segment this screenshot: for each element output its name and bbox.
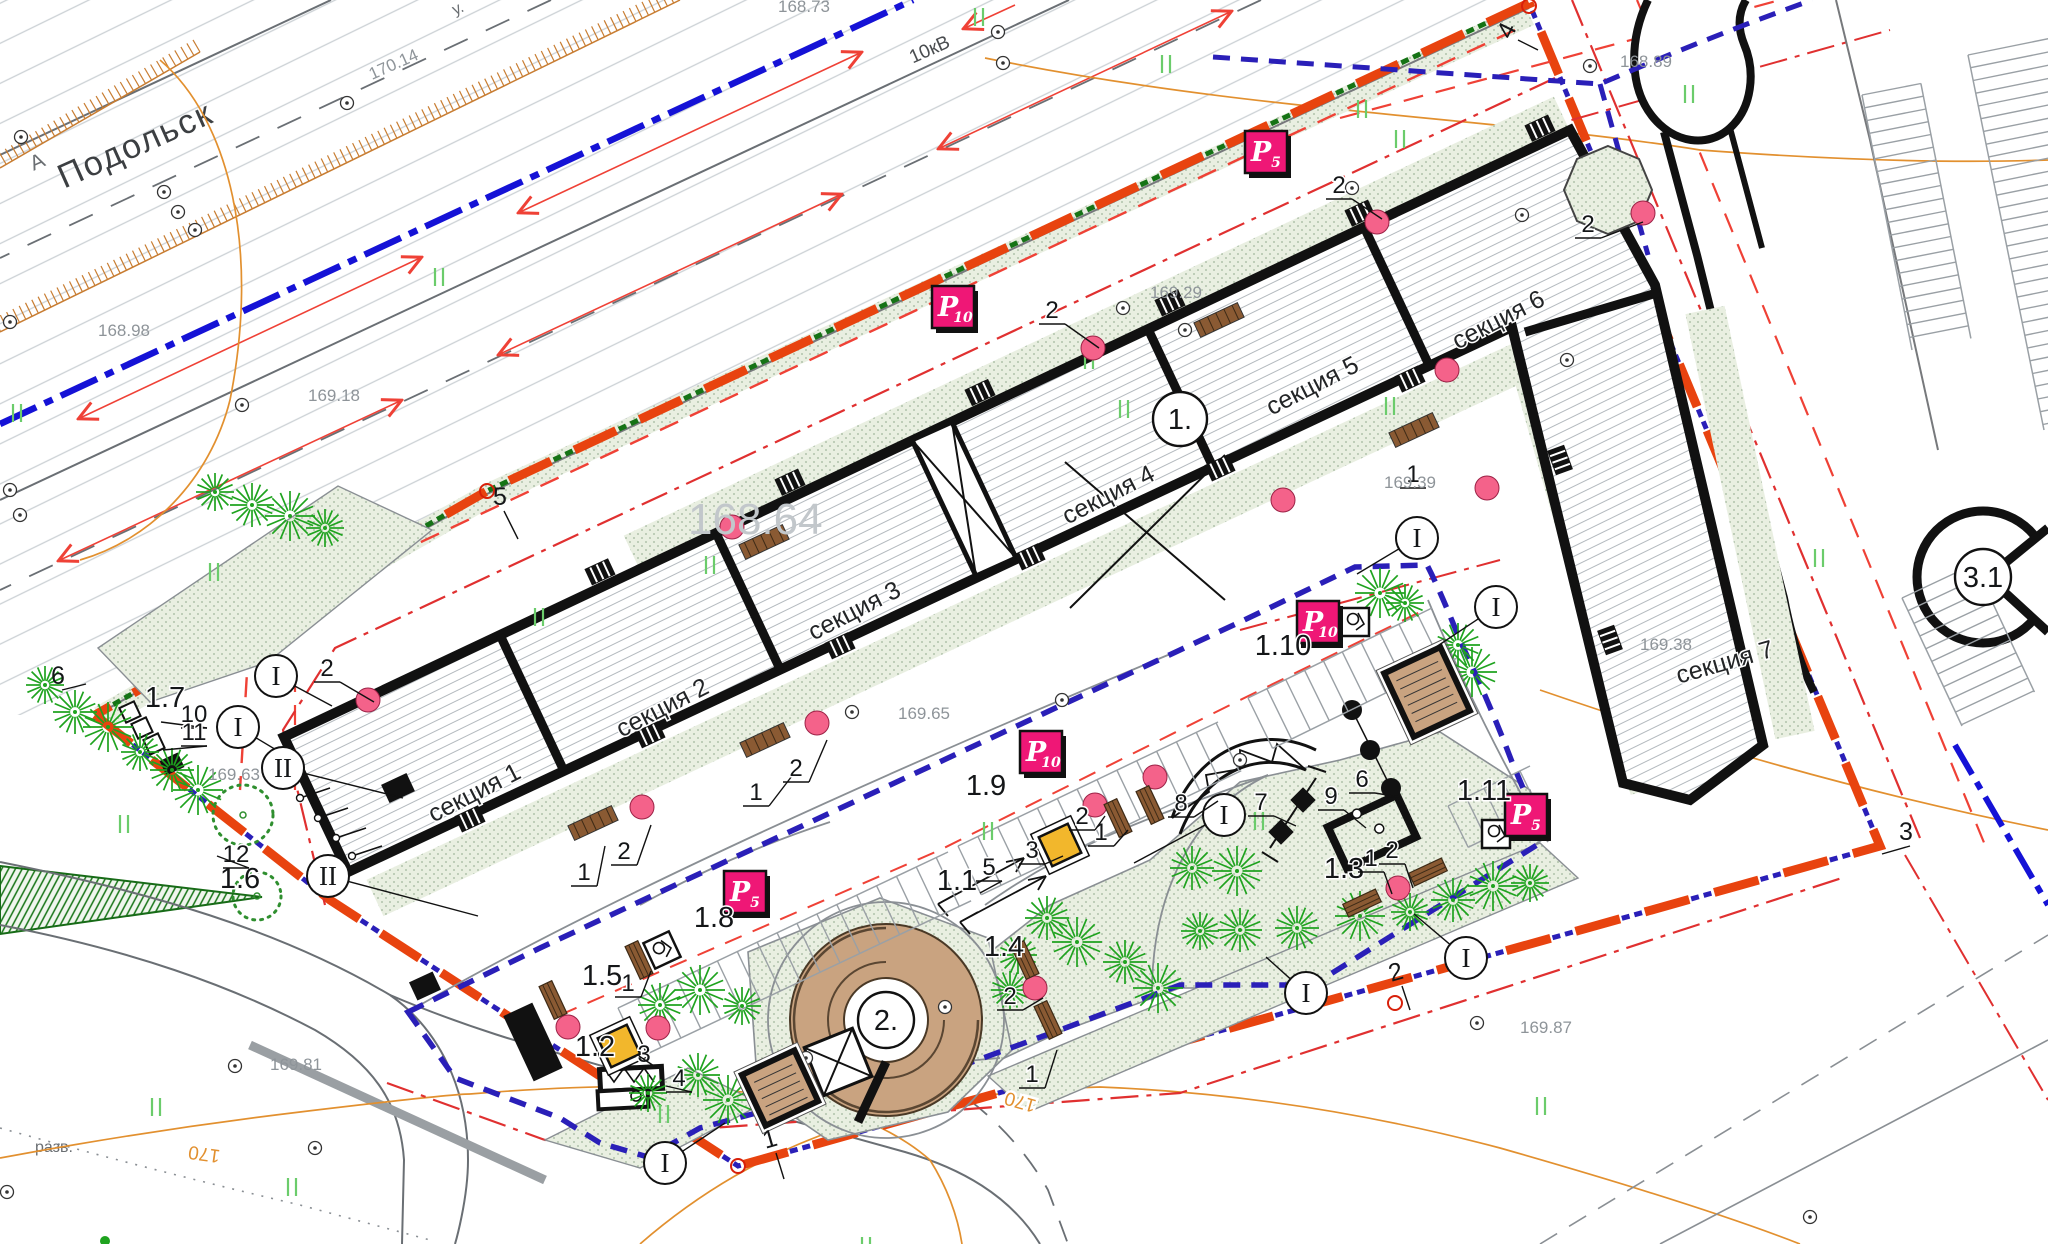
elevation-value: 169.81 xyxy=(270,1055,322,1074)
leader-number-text: 2 xyxy=(1581,211,1594,238)
parking-badge-P10: P10 xyxy=(932,286,978,333)
survey-point-icon xyxy=(997,57,1010,70)
vertex-number: 3 xyxy=(1899,818,1913,846)
building-number-text: 2. xyxy=(874,1005,898,1037)
leader-number-text: 3 xyxy=(1025,837,1038,864)
tree-icon xyxy=(121,733,159,771)
tree-icon xyxy=(1025,896,1069,940)
entrance-dot xyxy=(1143,765,1167,789)
red-dashdot-lane xyxy=(1905,855,2048,1100)
tree-icon xyxy=(1275,906,1319,950)
parking-badge-P5: P5 xyxy=(1505,794,1551,841)
entrance-dot xyxy=(1631,201,1655,225)
parking-comb xyxy=(1862,83,1971,350)
survey-point-icon xyxy=(1179,324,1192,337)
roman-numeral: I xyxy=(1492,592,1501,622)
grey-dashed-line xyxy=(1540,935,2048,1244)
survey-point-icon xyxy=(341,97,354,110)
leader-number: 12 xyxy=(217,841,249,868)
survey-point-icon xyxy=(309,1142,322,1155)
survey-point-icon xyxy=(1,1186,14,1199)
leader-number-text: 3 xyxy=(637,1041,650,1068)
tree-icon xyxy=(1218,908,1262,952)
tree-icon xyxy=(1511,864,1549,902)
leader-number-text: 2 xyxy=(1332,172,1345,199)
building-number-3.1: 3.1 xyxy=(1955,549,2011,605)
leader-number-text: 2 xyxy=(320,655,333,682)
survey-point-icon xyxy=(1561,354,1574,367)
elevation-value: 169.63 xyxy=(208,765,260,784)
site-plan-page: Подольск А у. 10кВ разв. xyxy=(0,0,2048,1244)
tree-icon xyxy=(675,965,725,1015)
vegetation-tick xyxy=(1396,130,1404,148)
elevation-mark: 169.63 xyxy=(208,765,260,784)
leader-number: 2 xyxy=(611,825,651,865)
tree-icon xyxy=(723,987,761,1025)
vertex-number: 6 xyxy=(51,662,65,690)
elevation-value: 169.18 xyxy=(308,386,360,405)
area-code-label: 1.3 xyxy=(1324,853,1364,885)
leader-number-text: 1 xyxy=(1025,1061,1038,1088)
parking-badge-P10: P10 xyxy=(1020,731,1066,778)
leader-number: 1 xyxy=(571,846,605,886)
survey-point-icon xyxy=(1056,694,1069,707)
survey-point-icon xyxy=(1516,209,1529,222)
elevation-value: 169.87 xyxy=(1520,1018,1572,1037)
elevation-value: 169.65 xyxy=(898,704,950,723)
large-elevation-value: 168.64 xyxy=(688,495,823,544)
leader-number-text: 1 xyxy=(1094,819,1107,846)
leader-number: 1 xyxy=(743,772,795,806)
leader-number-text: 11 xyxy=(182,719,207,746)
tree-icon xyxy=(1181,912,1219,950)
survey-point-icon xyxy=(1584,60,1597,73)
boundary-vertex-label: 3 xyxy=(1882,818,1913,854)
roman-numeral: I xyxy=(272,661,281,691)
elevation-mark: 169.65 xyxy=(898,704,950,723)
leader-number-text: 6 xyxy=(1355,766,1368,793)
tree-icon xyxy=(1431,878,1475,922)
area-code-label: 1.1 xyxy=(937,865,977,897)
leader-number-text: 5 xyxy=(982,854,995,881)
vertex-number: 1 xyxy=(759,1124,780,1155)
tree-icon xyxy=(196,473,234,511)
vegetation-tick xyxy=(152,1098,160,1116)
survey-point-icon xyxy=(992,26,1005,39)
entrance-dot xyxy=(630,795,654,819)
survey-point-icon xyxy=(236,399,249,412)
elevation-value: 169.39 xyxy=(1384,473,1436,492)
tree-icon xyxy=(629,1074,667,1112)
tree-icon xyxy=(230,483,274,527)
vegetation-tick xyxy=(288,1178,296,1196)
area-code-label: 1.4 xyxy=(984,931,1024,963)
trash-stand-icon xyxy=(643,931,680,968)
survey-point-icon xyxy=(4,484,17,497)
badge-subscript: 10 xyxy=(1041,755,1061,771)
badge-subscript: 5 xyxy=(750,895,760,911)
roman-numeral: I xyxy=(1462,943,1471,973)
survey-point-icon xyxy=(4,316,17,329)
boundary-vertex-point xyxy=(1388,996,1402,1010)
tree-icon xyxy=(1386,584,1424,622)
roman-numeral: I xyxy=(1413,523,1422,553)
survey-point-icon xyxy=(14,509,27,522)
survey-point-icon xyxy=(1346,182,1359,195)
entrance-dot xyxy=(356,688,380,712)
survey-point-icon xyxy=(172,206,185,219)
survey-point-icon xyxy=(939,1001,952,1014)
badge-subscript: 10 xyxy=(953,310,973,326)
elevation-value: 169.29 xyxy=(1150,283,1202,302)
tree-icon xyxy=(1052,917,1102,967)
entrance-dot xyxy=(646,1016,670,1040)
tree-icon xyxy=(1170,846,1214,890)
parking-comb xyxy=(1968,38,2048,430)
entrance-dot xyxy=(1475,476,1499,500)
area-code-label: 1.5 xyxy=(582,960,622,992)
area-code-label: 1.8 xyxy=(694,902,734,934)
roman-numeral: I xyxy=(661,1148,670,1178)
tree-icon xyxy=(1133,963,1183,1013)
vegetation-tick xyxy=(1815,549,1823,567)
survey-point-icon xyxy=(846,706,859,719)
elevation-mark: 169.38 xyxy=(1640,635,1692,654)
leader-number-text: 8 xyxy=(1174,790,1187,817)
site-plan-canvas: Подольск А у. 10кВ разв. xyxy=(0,0,2048,1244)
badge-subscript: 5 xyxy=(1271,155,1281,171)
leader-number-text: 2 xyxy=(789,755,802,782)
trash-stand-icon xyxy=(1341,608,1369,636)
elevation-value: 169.38 xyxy=(1640,635,1692,654)
green-dot xyxy=(100,1236,110,1244)
area-code-label: 1.7 xyxy=(145,682,185,714)
grey-line xyxy=(1660,1040,2048,1244)
roman-numeral: I xyxy=(1220,800,1229,830)
entrance-dot xyxy=(805,711,829,735)
roman-numeral: II xyxy=(319,861,337,891)
roman-numeral: I xyxy=(234,712,243,742)
building-number-text: 3.1 xyxy=(1963,562,2003,594)
parking-badge-P5: P5 xyxy=(1245,131,1291,178)
leader-number-text: 7 xyxy=(1254,789,1267,816)
survey-point-icon xyxy=(158,186,171,199)
elevation-value: 168.89 xyxy=(1620,52,1672,71)
area-code-label: 1.9 xyxy=(966,770,1006,802)
elevation-value: 168.98 xyxy=(98,321,150,340)
roman-numeral: I xyxy=(1302,978,1311,1008)
survey-point-icon xyxy=(1234,754,1247,767)
badge-subscript: 5 xyxy=(1531,818,1541,834)
parking-building-edge xyxy=(1730,128,1762,248)
survey-point-icon xyxy=(189,224,202,237)
elevation-mark: 168.89 xyxy=(1620,52,1672,71)
leader-number-text: 2 xyxy=(1385,837,1398,864)
entrance-dot xyxy=(1271,488,1295,512)
tree-icon xyxy=(306,509,344,547)
leader-number-text: 1 xyxy=(577,859,590,886)
badge-subscript: 10 xyxy=(1318,625,1338,641)
contour-elevation-label: 170 xyxy=(187,1141,221,1166)
elevation-mark: 168.98 xyxy=(98,321,150,340)
leader-number-text: 1 xyxy=(621,970,634,997)
entrance-dot xyxy=(1365,210,1389,234)
elevation-mark: 169.39 xyxy=(1384,473,1436,492)
survey-point-icon xyxy=(1117,302,1130,315)
badge-letter: P xyxy=(1510,800,1532,831)
blue-dashdot-line xyxy=(1955,745,2048,905)
tree-icon xyxy=(265,491,315,541)
roman-numeral: II xyxy=(274,753,292,783)
entrance-dot xyxy=(1435,358,1459,382)
leader-number-text: 1 xyxy=(749,779,762,806)
leader-number-text: 2 xyxy=(1075,803,1088,830)
lighting-bollard xyxy=(1360,740,1380,760)
bench-icon xyxy=(539,981,567,1020)
badge-letter: P xyxy=(1250,137,1272,168)
tree-icon xyxy=(83,702,133,752)
building-number-text: 1. xyxy=(1168,404,1192,436)
vegetation-tick xyxy=(862,1237,870,1244)
entrance-dot xyxy=(1081,336,1105,360)
area-code-label: 1.11 xyxy=(1457,775,1511,807)
leader-number-text: 2 xyxy=(1045,297,1058,324)
leader-number: 2 xyxy=(783,740,827,782)
bench-icon xyxy=(1104,799,1132,838)
survey-point-icon xyxy=(15,131,28,144)
roman-marker-I: I xyxy=(1357,517,1438,574)
leader-number-text: 9 xyxy=(1324,783,1337,810)
area-code-label: 1.10 xyxy=(1255,630,1311,662)
survey-point-icon xyxy=(1471,1017,1484,1030)
area-code-label: 1.2 xyxy=(575,1031,615,1063)
building-number-2.: 2. xyxy=(858,992,914,1048)
leader-number-text: 1 xyxy=(1364,845,1377,872)
elevation-mark: 169.18 xyxy=(308,386,360,405)
vegetation-tick xyxy=(1537,1097,1545,1115)
elevation-mark: 169.29 xyxy=(1150,283,1202,302)
building-number-1.: 1. xyxy=(1153,392,1207,446)
survey-point-icon xyxy=(1804,1211,1817,1224)
leader-number-text: 2 xyxy=(617,838,630,865)
elevation-mark: 168.73 xyxy=(778,0,830,16)
leader-number-text: 2 xyxy=(1003,983,1016,1010)
elevation-mark: 169.81 xyxy=(270,1055,322,1074)
elevation-value: 168.73 xyxy=(778,0,830,16)
leader-number-text: 12 xyxy=(223,841,250,868)
survey-point-icon xyxy=(229,1060,242,1073)
elevation-mark: 169.87 xyxy=(1520,1018,1572,1037)
vegetation-tick xyxy=(120,815,128,833)
vertex-number: 5 xyxy=(493,483,507,511)
tree-icon xyxy=(1212,846,1262,896)
tree-icon xyxy=(1468,861,1518,911)
tree-icon xyxy=(1103,940,1147,984)
